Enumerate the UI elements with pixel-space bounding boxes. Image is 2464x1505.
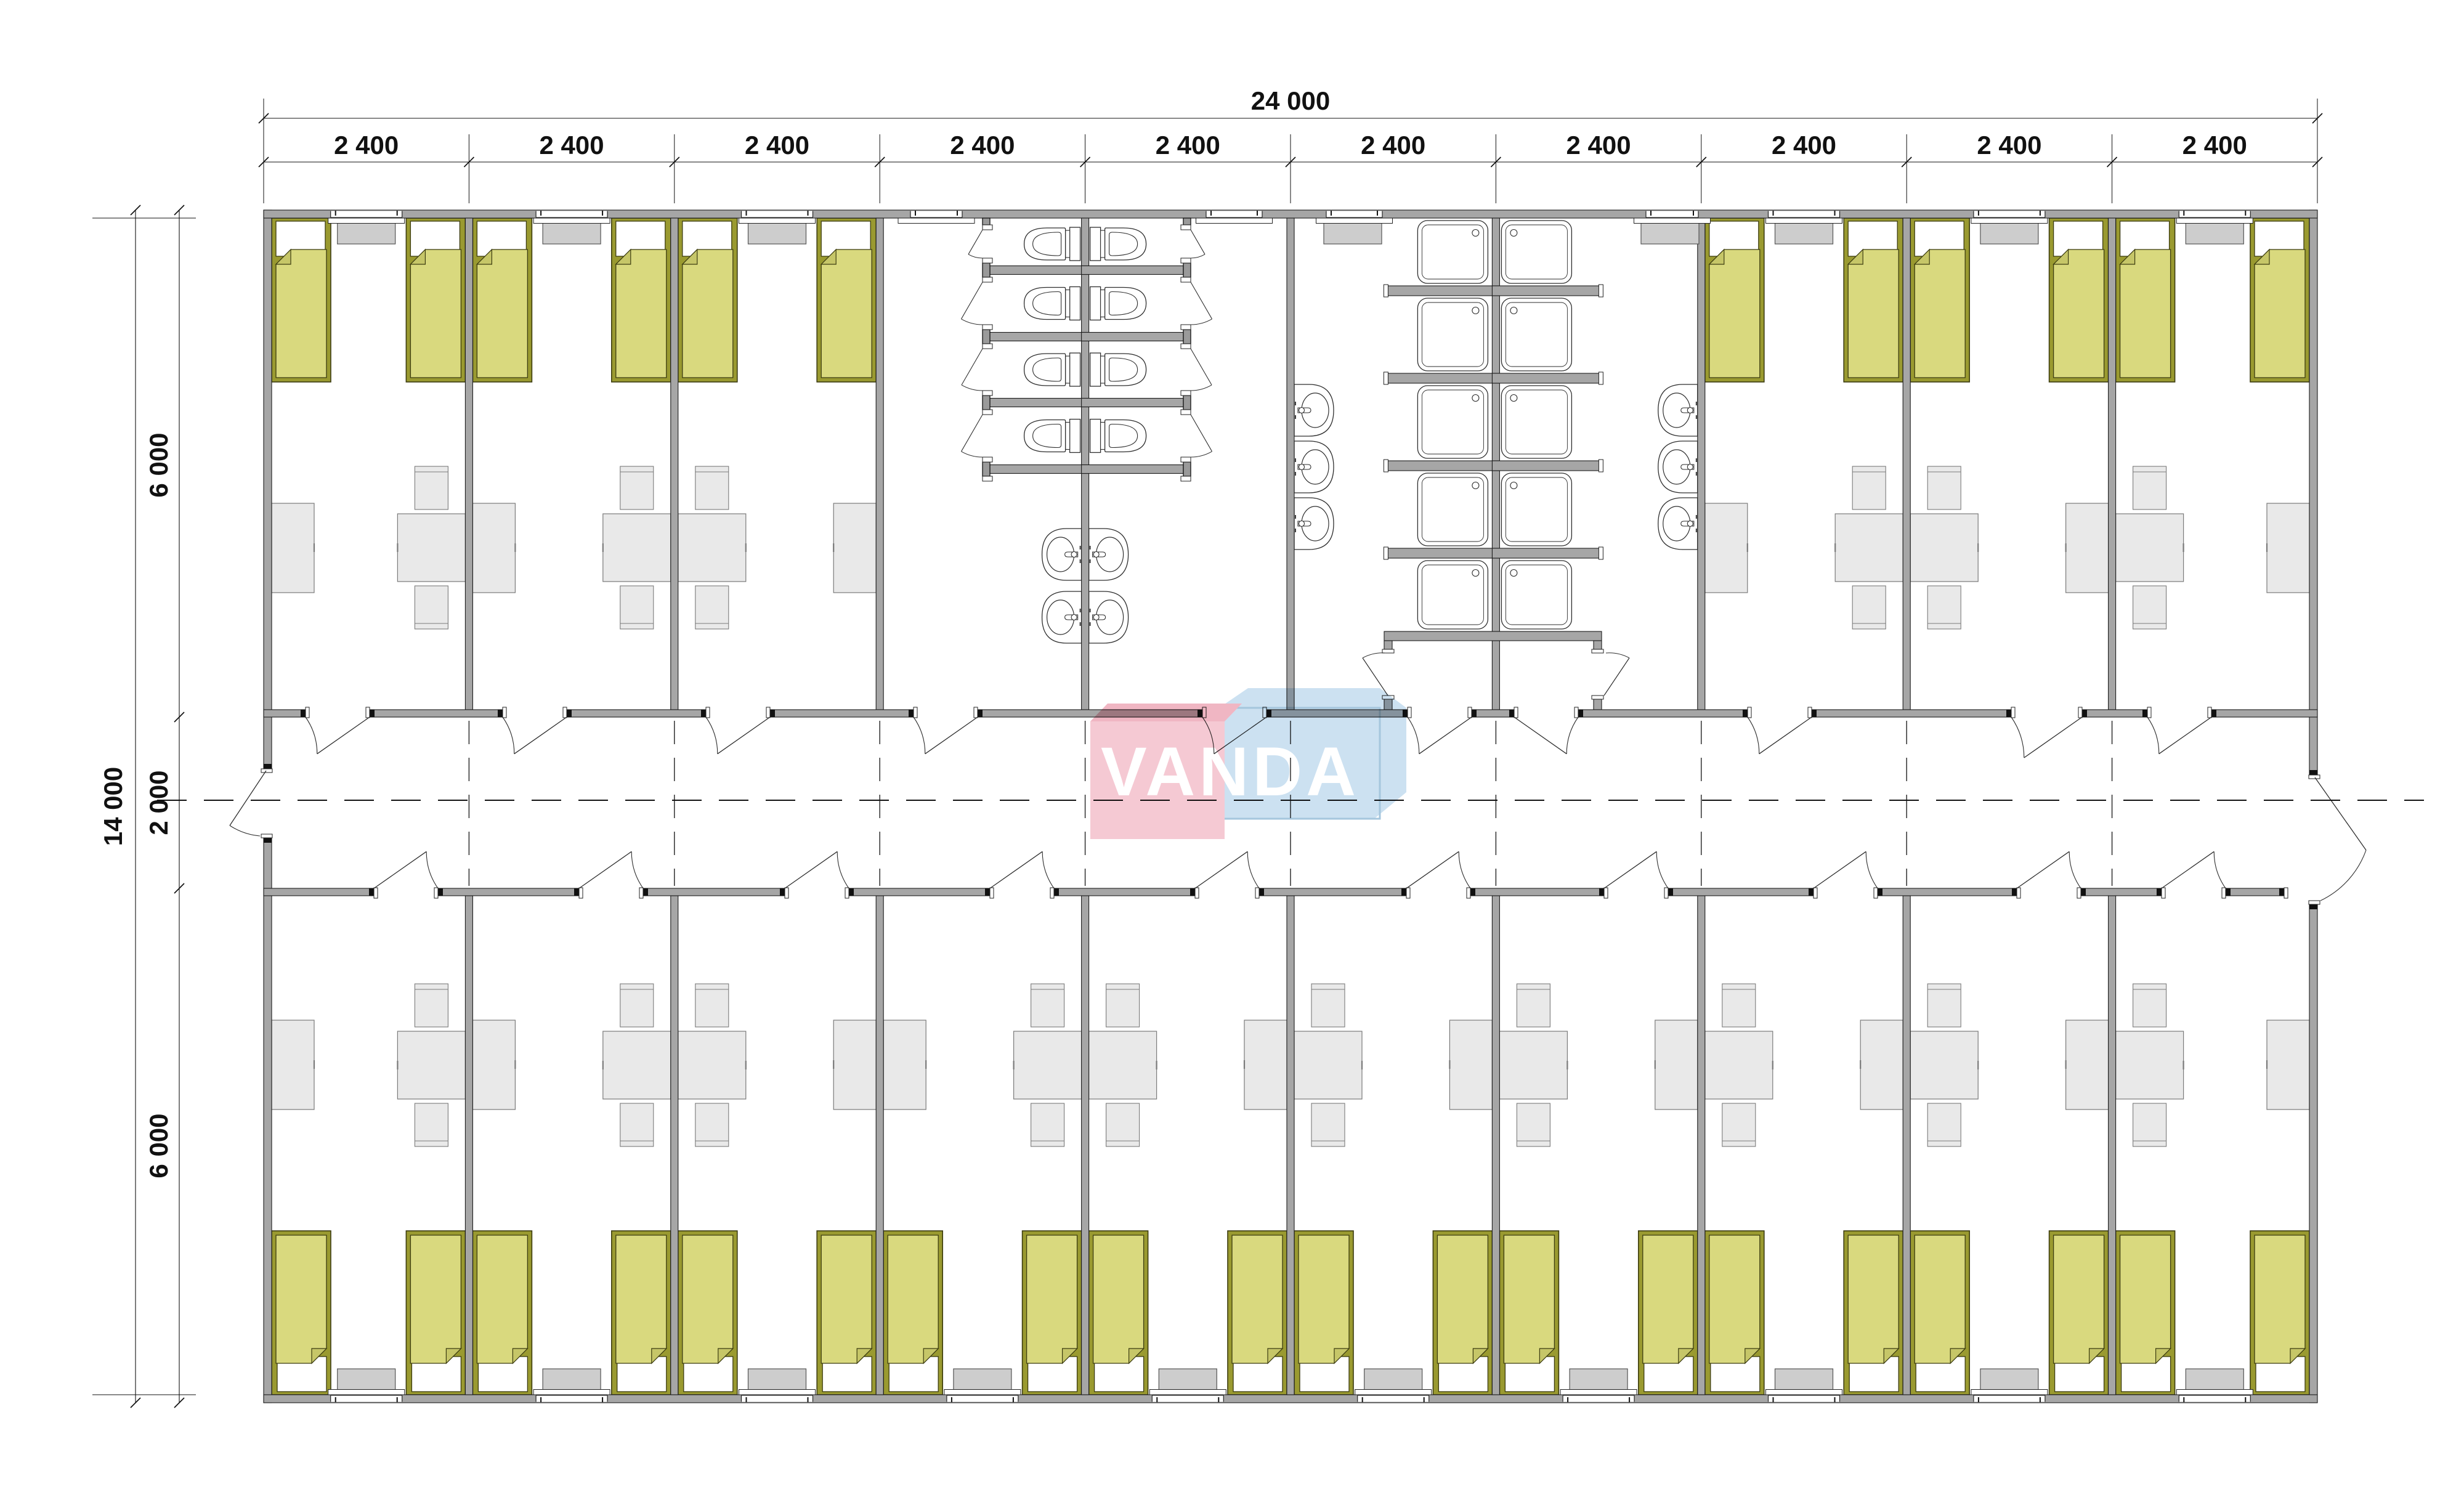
svg-text:6 000: 6 000 xyxy=(144,432,173,497)
svg-text:2 000: 2 000 xyxy=(144,770,173,835)
svg-text:2 400: 2 400 xyxy=(334,131,399,160)
svg-text:2 400: 2 400 xyxy=(1772,131,1836,160)
svg-text:2 400: 2 400 xyxy=(2182,131,2247,160)
svg-text:14 000: 14 000 xyxy=(99,767,128,846)
svg-text:2 400: 2 400 xyxy=(745,131,809,160)
svg-text:2 400: 2 400 xyxy=(1977,131,2041,160)
svg-text:24 000: 24 000 xyxy=(1251,86,1330,115)
svg-text:2 400: 2 400 xyxy=(540,131,604,160)
svg-text:2 400: 2 400 xyxy=(1566,131,1631,160)
svg-text:6 000: 6 000 xyxy=(144,1113,173,1178)
svg-text:2 400: 2 400 xyxy=(1156,131,1220,160)
svg-text:2 400: 2 400 xyxy=(1361,131,1425,160)
svg-text:2 400: 2 400 xyxy=(950,131,1015,160)
